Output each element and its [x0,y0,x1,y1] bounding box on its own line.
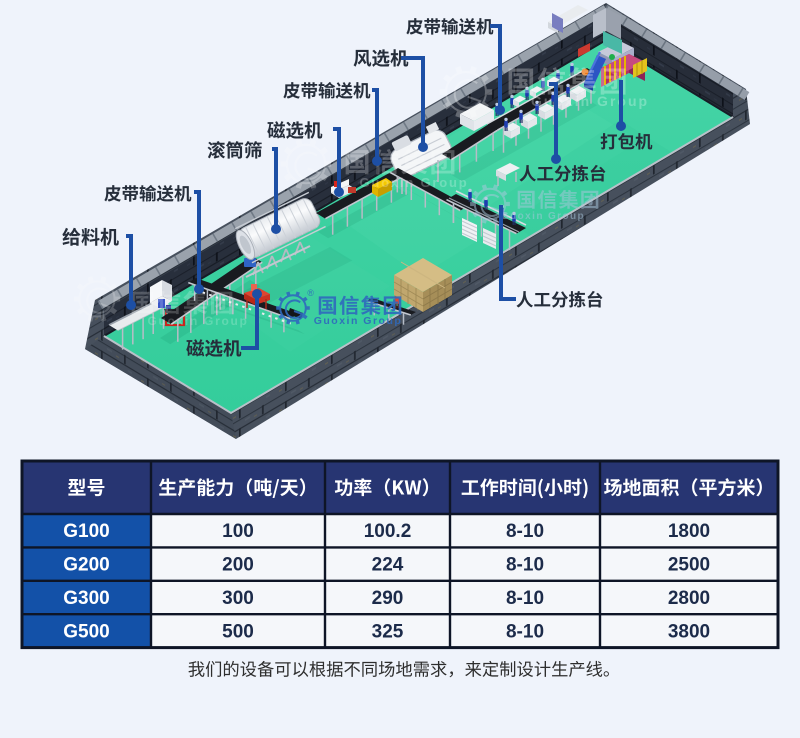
svg-text:8-10: 8-10 [506,588,544,609]
svg-text:G300: G300 [63,588,109,609]
svg-text:1800: 1800 [668,521,710,542]
svg-text:3800: 3800 [668,621,710,642]
svg-text:Guoxin Group: Guoxin Group [147,314,248,328]
svg-text:2500: 2500 [668,555,710,576]
svg-text:2800: 2800 [668,588,710,609]
svg-text:200: 200 [222,555,254,576]
svg-text:G100: G100 [63,521,109,542]
svg-text:®: ® [307,288,314,298]
svg-text:Guoxin Group: Guoxin Group [314,315,403,327]
svg-text:224: 224 [372,555,404,576]
svg-text:Guoxin Group: Guoxin Group [531,93,649,109]
svg-text:Guoxin Group: Guoxin Group [360,175,469,190]
svg-text:100: 100 [222,521,254,542]
svg-text:500: 500 [222,621,254,642]
svg-text:8-10: 8-10 [506,555,544,576]
svg-text:100.2: 100.2 [364,521,412,542]
svg-text:8-10: 8-10 [506,621,544,642]
svg-text:300: 300 [222,588,254,609]
svg-text:290: 290 [372,588,404,609]
svg-text:Guoxin Group: Guoxin Group [501,211,585,222]
svg-text:8-10: 8-10 [506,521,544,542]
svg-text:G500: G500 [63,621,109,642]
svg-text:G200: G200 [63,555,109,576]
svg-text:325: 325 [372,621,404,642]
